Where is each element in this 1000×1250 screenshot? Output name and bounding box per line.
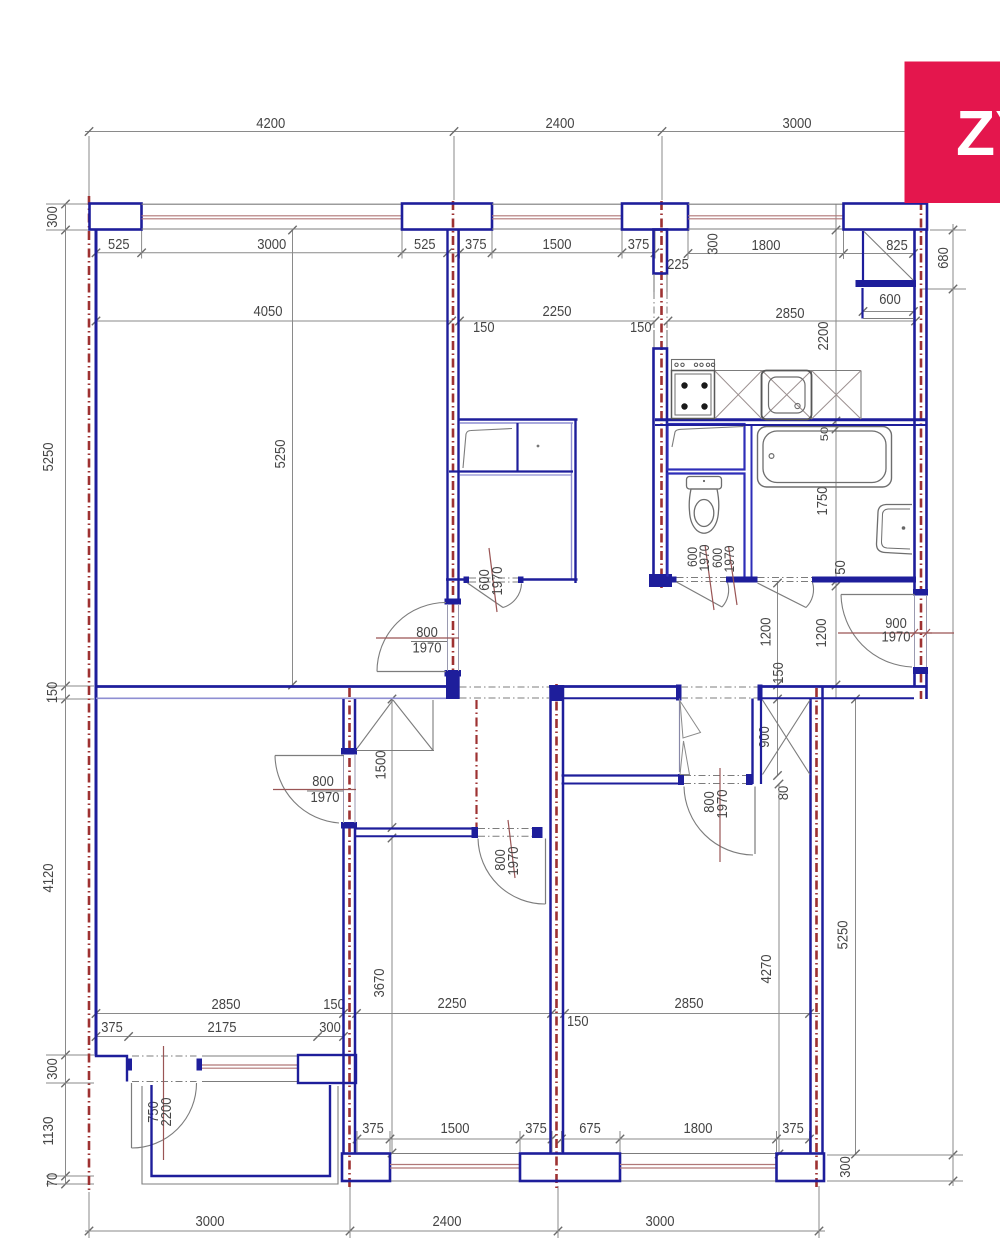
svg-text:150: 150 (567, 1014, 589, 1030)
svg-text:375: 375 (525, 1121, 547, 1137)
svg-text:5250: 5250 (836, 921, 852, 950)
svg-text:1500: 1500 (543, 237, 572, 253)
svg-text:600: 600 (879, 292, 901, 308)
svg-text:800: 800 (312, 774, 334, 790)
svg-text:1970: 1970 (882, 630, 911, 646)
svg-text:375: 375 (782, 1121, 804, 1137)
svg-text:50: 50 (833, 560, 849, 575)
svg-text:1130: 1130 (41, 1117, 57, 1146)
svg-text:300: 300 (838, 1156, 854, 1178)
svg-text:150: 150 (630, 320, 652, 336)
svg-text:2250: 2250 (543, 304, 572, 320)
svg-text:2400: 2400 (546, 116, 575, 132)
svg-text:3670: 3670 (372, 969, 388, 998)
svg-text:375: 375 (101, 1020, 123, 1036)
svg-text:375: 375 (628, 237, 650, 253)
svg-text:2200: 2200 (159, 1098, 175, 1127)
svg-text:ZY: ZY (956, 97, 1000, 169)
svg-text:525: 525 (414, 237, 436, 253)
svg-text:3000: 3000 (257, 237, 286, 253)
svg-text:5250: 5250 (273, 440, 289, 469)
svg-text:680: 680 (936, 247, 952, 269)
svg-text:1970: 1970 (506, 847, 522, 876)
svg-text:800: 800 (416, 625, 438, 641)
svg-text:1800: 1800 (684, 1121, 713, 1137)
svg-text:825: 825 (886, 238, 908, 254)
svg-text:1970: 1970 (311, 790, 340, 806)
svg-text:300: 300 (706, 233, 722, 255)
svg-text:1750: 1750 (815, 487, 831, 516)
svg-text:150: 150 (473, 320, 495, 336)
svg-text:2400: 2400 (433, 1214, 462, 1230)
svg-text:3000: 3000 (783, 116, 812, 132)
svg-text:375: 375 (362, 1121, 384, 1137)
svg-text:2200: 2200 (816, 322, 832, 351)
svg-text:2850: 2850 (675, 996, 704, 1012)
svg-text:300: 300 (45, 1058, 61, 1080)
svg-text:4120: 4120 (41, 864, 57, 893)
svg-text:2175: 2175 (208, 1020, 237, 1036)
svg-text:1500: 1500 (441, 1121, 470, 1137)
svg-text:525: 525 (108, 237, 130, 253)
svg-text:900: 900 (757, 726, 773, 748)
svg-text:375: 375 (465, 237, 487, 253)
svg-text:50: 50 (819, 427, 831, 442)
svg-text:1970: 1970 (490, 567, 506, 596)
svg-text:675: 675 (579, 1121, 601, 1137)
svg-text:80: 80 (776, 786, 792, 801)
svg-text:70: 70 (45, 1173, 61, 1188)
svg-text:2850: 2850 (776, 306, 805, 322)
svg-text:150: 150 (771, 662, 787, 684)
svg-text:150: 150 (45, 682, 61, 704)
svg-text:5250: 5250 (41, 443, 57, 472)
svg-text:1200: 1200 (814, 619, 830, 648)
svg-text:1970: 1970 (413, 641, 442, 657)
svg-text:3000: 3000 (196, 1214, 225, 1230)
svg-text:1970: 1970 (722, 546, 737, 573)
svg-text:3000: 3000 (646, 1214, 675, 1230)
svg-text:150: 150 (323, 997, 345, 1013)
svg-text:2250: 2250 (438, 996, 467, 1012)
svg-text:1800: 1800 (752, 238, 781, 254)
svg-text:225: 225 (667, 257, 689, 273)
svg-text:300: 300 (45, 206, 61, 228)
svg-text:4050: 4050 (254, 304, 283, 320)
svg-text:2850: 2850 (212, 997, 241, 1013)
svg-text:300: 300 (319, 1020, 341, 1036)
svg-text:4200: 4200 (256, 116, 285, 132)
svg-text:1500: 1500 (374, 751, 390, 780)
svg-text:4270: 4270 (759, 955, 775, 984)
svg-text:1200: 1200 (759, 618, 775, 647)
svg-text:1970: 1970 (715, 790, 731, 819)
